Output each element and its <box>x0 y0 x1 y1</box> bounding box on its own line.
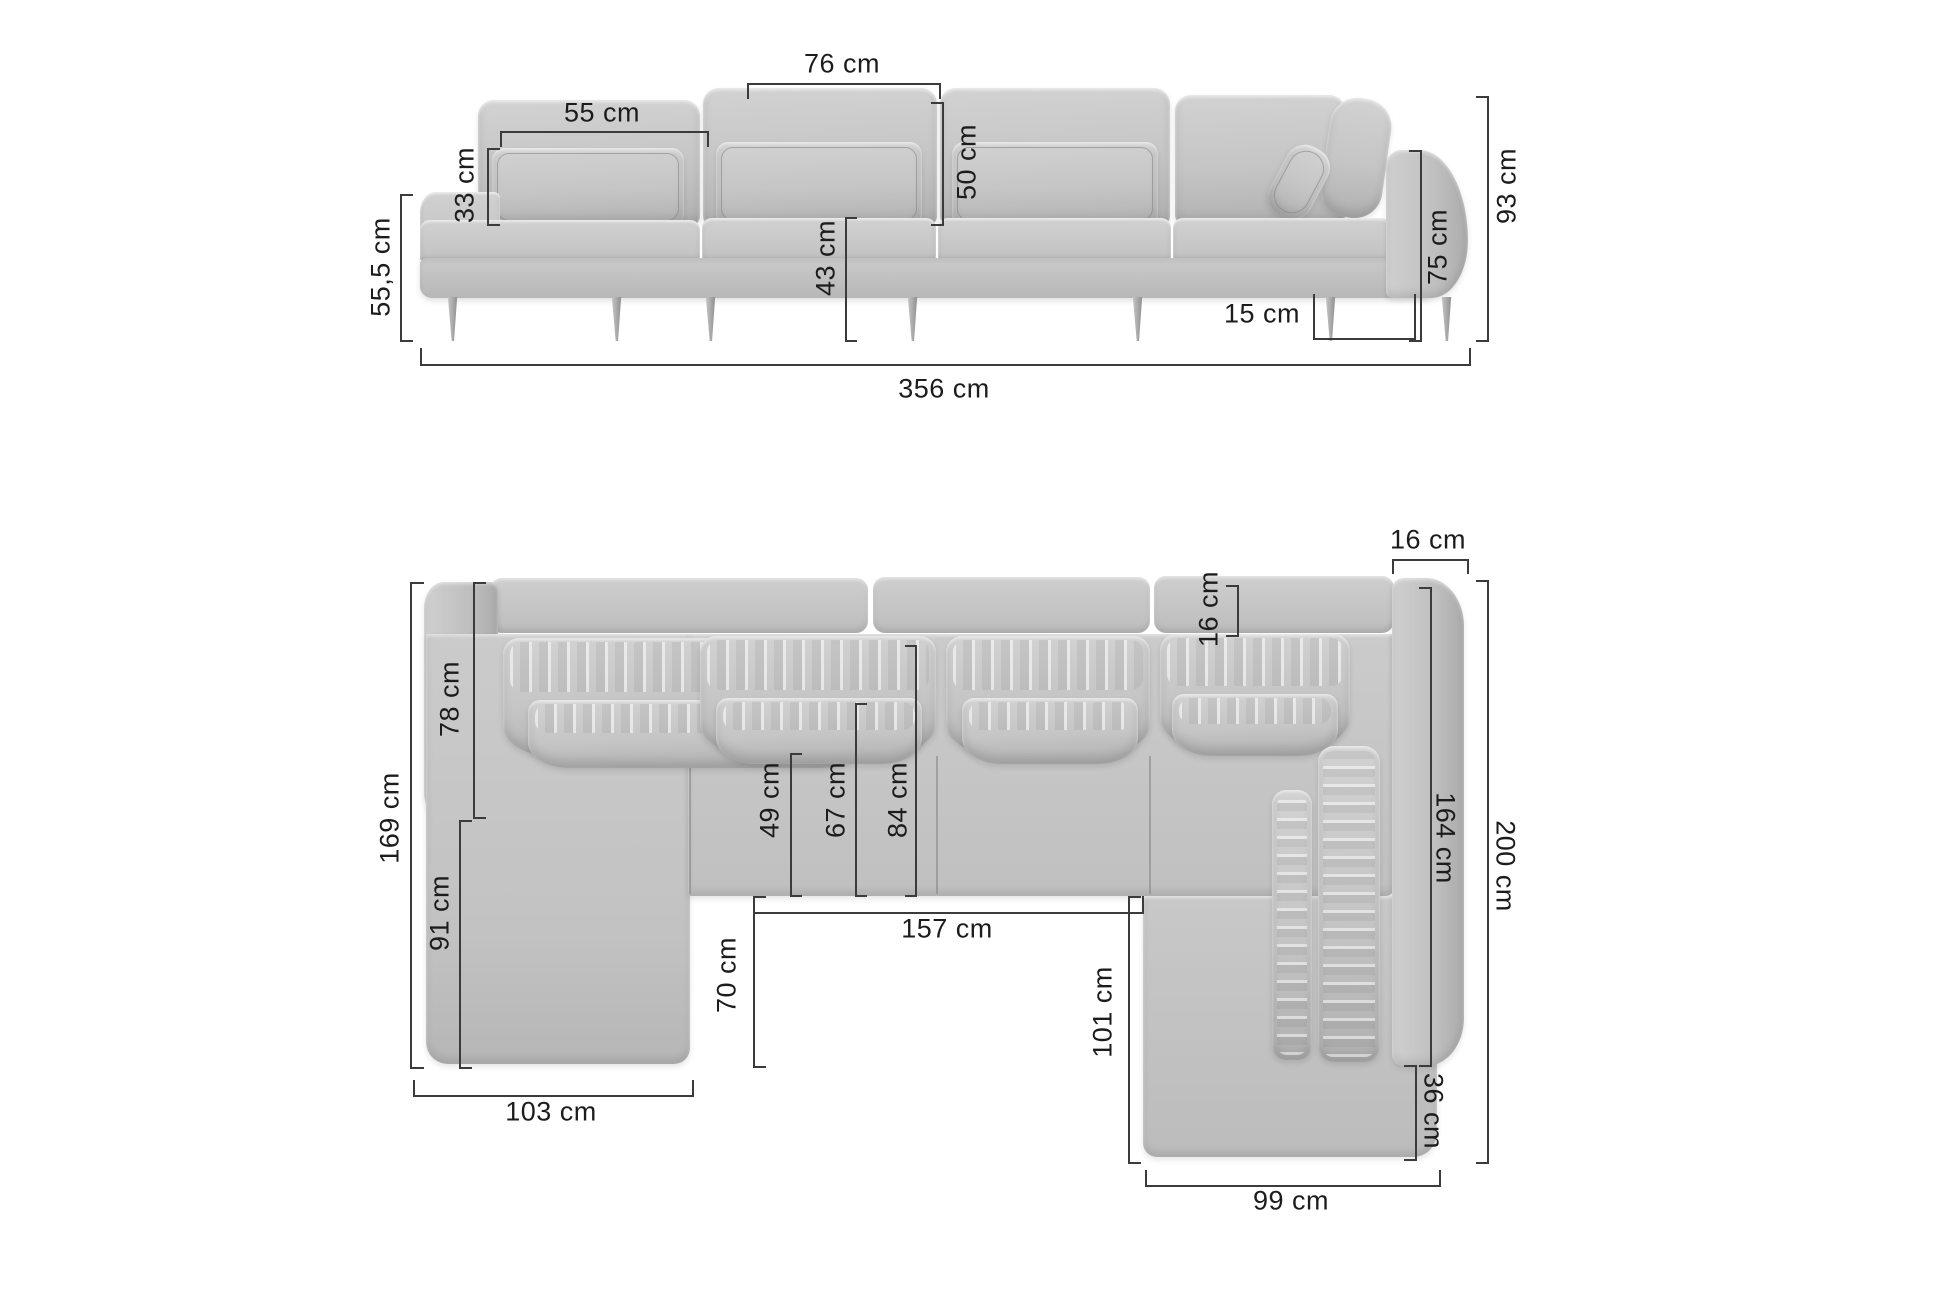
top-inner-pillow-3 <box>962 698 1138 764</box>
module-seam <box>936 756 938 894</box>
dim-ottoman-side-length <box>1128 896 1141 1164</box>
dim-label-back-module-width: 76 cm <box>804 49 880 80</box>
dim-total-height <box>1476 96 1489 342</box>
dim-label-ottoman-back-depth: 36 cm <box>1418 1073 1449 1149</box>
dim-armrest-width <box>1392 559 1469 574</box>
dim-label-chaise-extension-depth: 70 cm <box>712 937 743 1013</box>
dim-mid-pillow-depth <box>855 703 867 897</box>
dim-label-seat-height: 43 cm <box>811 220 842 296</box>
dim-inner-width <box>753 896 1144 914</box>
sofa-leg <box>610 297 623 341</box>
dim-leg-inset <box>1313 294 1416 340</box>
sofa-dimension-diagram: 76 cm 55 cm 33 cm 50 cm 55,5 cm 43 cm 75… <box>0 0 1946 1297</box>
dim-label-mid-pillow-depth: 67 cm <box>821 762 852 838</box>
dim-label-backrest-height: 50 cm <box>952 124 983 200</box>
dim-total-depth <box>1476 580 1489 1164</box>
dim-label-chaise-width: 103 cm <box>505 1097 597 1128</box>
top-backrest-band-3 <box>1154 576 1394 633</box>
front-seat-cushion-1 <box>420 220 700 262</box>
top-side-cushion-inner <box>1272 790 1312 1060</box>
front-view: 76 cm 55 cm 33 cm 50 cm 55,5 cm 43 cm 75… <box>0 0 1946 420</box>
top-side-cushion-outer <box>1318 746 1380 1062</box>
dim-backrest-depth <box>1226 585 1239 637</box>
dim-label-pillow-height: 33 cm <box>450 147 481 223</box>
sofa-leg <box>446 297 459 341</box>
front-seat-cushion-3 <box>938 218 1171 262</box>
top-inner-pillow-corner <box>1172 694 1338 756</box>
dim-chaise-side-length <box>459 820 472 1069</box>
top-view: 16 cm 16 cm 78 cm 169 cm 91 cm 49 cm 67 … <box>0 420 1946 1297</box>
dim-label-pillow-front-depth: 49 cm <box>755 762 786 838</box>
dim-label-chaise-side-length: 91 cm <box>425 875 456 951</box>
dim-backrest-height <box>931 102 944 226</box>
dim-pillow-front-depth <box>790 753 802 897</box>
dim-side-backrest-length <box>473 582 486 819</box>
dim-label-seat-depth: 84 cm <box>883 762 914 838</box>
dim-label-armrest-height: 75 cm <box>1423 209 1454 285</box>
top-inner-pillow-2 <box>716 698 922 764</box>
dim-label-inner-width: 157 cm <box>901 914 993 945</box>
dim-label-total-width: 356 cm <box>898 374 990 405</box>
front-lumbar-pillow-1 <box>492 148 684 226</box>
dim-back-module-width <box>747 83 941 99</box>
dim-total-width <box>420 348 1471 366</box>
dim-label-pillow-width: 55 cm <box>564 98 640 129</box>
sofa-leg <box>906 297 919 341</box>
top-backrest-band-2 <box>873 577 1150 633</box>
dim-label-ottoman-width: 99 cm <box>1253 1186 1329 1217</box>
dim-label-total-depth: 200 cm <box>1490 820 1521 912</box>
front-lumbar-pillow-3 <box>952 142 1158 226</box>
front-lumbar-pillow-2 <box>716 142 922 226</box>
dim-ottoman-back-depth <box>1404 1065 1417 1161</box>
dim-pillow-width <box>500 131 709 147</box>
dim-chaise-width <box>413 1080 694 1097</box>
dim-label-total-height: 93 cm <box>1492 148 1523 224</box>
dim-left-side-length <box>410 582 424 1069</box>
top-backrest-band-1 <box>490 578 868 633</box>
dim-label-left-side-length: 169 cm <box>375 772 406 864</box>
dim-label-ottoman-side-length: 101 cm <box>1088 966 1119 1058</box>
front-base-platform <box>420 258 1434 298</box>
sofa-leg <box>1131 297 1144 341</box>
dim-open-end-height <box>400 194 413 342</box>
dim-label-backrest-depth: 16 cm <box>1194 571 1225 647</box>
module-seam <box>1149 756 1151 894</box>
dim-pillow-height <box>487 148 500 226</box>
dim-chaise-extension-depth <box>753 896 766 1068</box>
dim-ottoman-width <box>1145 1170 1441 1187</box>
sofa-leg <box>704 297 717 341</box>
dim-label-open-end-height: 55,5 cm <box>366 217 397 317</box>
sofa-leg <box>1440 297 1453 341</box>
dim-label-right-inner-length: 164 cm <box>1430 792 1461 884</box>
dim-label-armrest-width: 16 cm <box>1390 525 1466 556</box>
dim-label-leg-inset: 15 cm <box>1224 299 1300 330</box>
dim-label-side-backrest-length: 78 cm <box>435 661 466 737</box>
dim-seat-height <box>845 217 857 342</box>
front-seat-cushion-4 <box>1173 218 1391 262</box>
